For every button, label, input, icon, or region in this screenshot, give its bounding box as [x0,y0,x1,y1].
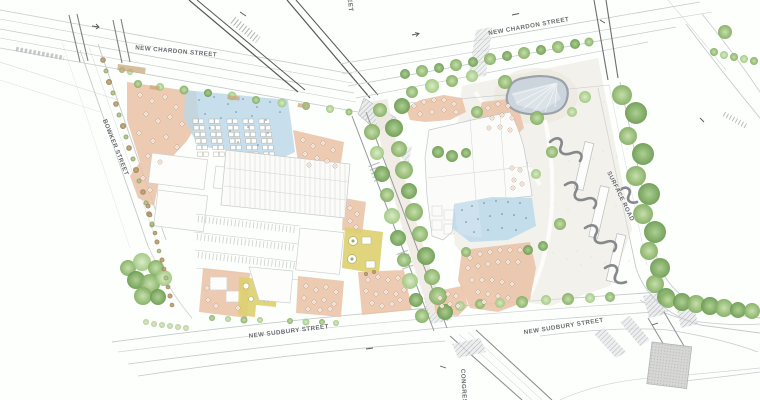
street-label-congress: CONGRESS STREET [459,369,470,400]
street-label-top-fragment: STREET [344,0,354,12]
building-outline-mid [296,228,344,274]
pond [507,76,568,114]
pale-shrub-row [143,319,189,331]
site-plan: NEW CHARDON STREET NEW CHARDON STREET BO… [0,0,760,400]
crosswalk-hatch [452,338,486,358]
crosswalk-ne [724,114,746,126]
sudbury-frontage-blocks [199,267,412,318]
paver-plaza-square [647,342,692,389]
yellow-plaza-east [342,227,383,274]
median-hatch-strip [16,49,64,58]
crosswalk-ladder [233,20,258,40]
crosswalk-band-west-1 [69,14,88,62]
crosswalk-hatch [594,328,626,358]
street-label-new-sudbury-west: NEW SUDBURY STREET [248,323,329,340]
site-plan-canvas: NEW CHARDON STREET NEW CHARDON STREET BO… [0,0,760,400]
street-label-new-chardon-west: NEW CHARDON STREET [135,44,217,58]
crosswalk-hatch [620,316,650,346]
